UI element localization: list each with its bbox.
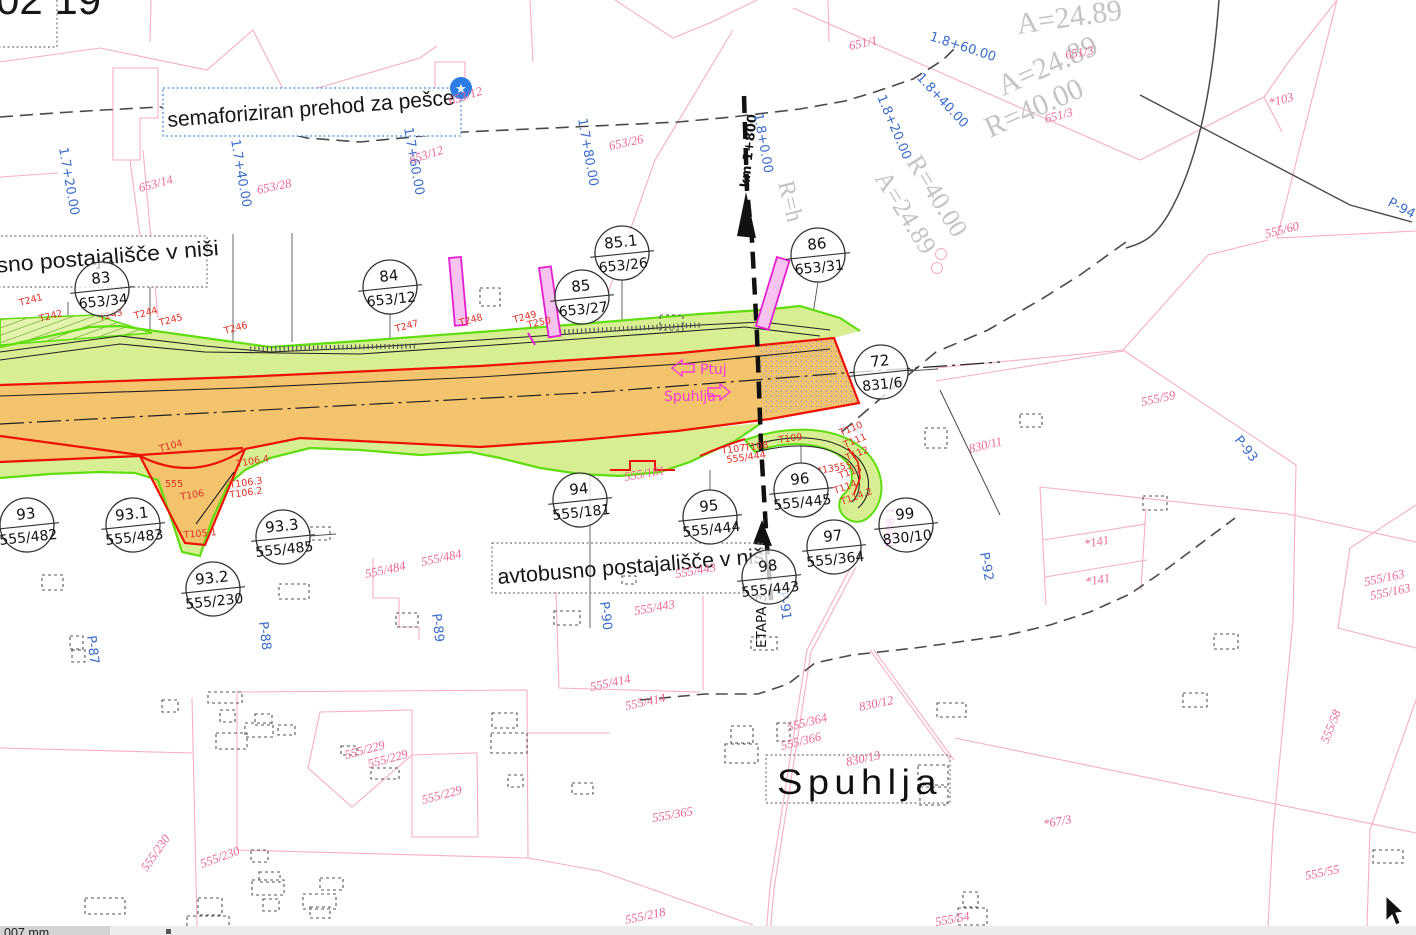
parcel-circle-number: 99 xyxy=(894,504,915,524)
gravel-section xyxy=(757,338,859,413)
parcel-label: 555/484 xyxy=(420,547,463,569)
parcel-label: *67/3 xyxy=(1042,812,1072,831)
building-footprint xyxy=(480,288,500,306)
status-tick xyxy=(166,929,171,934)
building-footprint xyxy=(925,428,947,448)
parcel-circle-number: 72 xyxy=(869,351,890,371)
parcel-circle-number: 98 xyxy=(757,556,778,576)
geometry-label: A=24.89 xyxy=(1014,0,1124,41)
survey-point-label: T105.1 xyxy=(182,527,217,541)
station-label: 1.7+20.00 xyxy=(55,146,82,216)
building-footprint xyxy=(491,733,527,753)
building-footprint xyxy=(508,775,523,787)
profile-label: P-88 xyxy=(255,621,273,651)
building-footprint xyxy=(303,894,336,909)
parcel-label: 555/414 xyxy=(589,672,632,694)
corner-fragment-text[interactable]: 02 19 xyxy=(0,0,101,23)
parcel-label: *141 xyxy=(1084,571,1111,589)
building-footprint xyxy=(216,733,247,749)
profile-label: P-89 xyxy=(428,613,446,643)
parcel-label: *103 xyxy=(1267,90,1295,110)
building-footprint xyxy=(320,878,343,890)
building-footprint xyxy=(72,650,85,662)
parcel-circle: 93.3555/485 xyxy=(248,507,317,567)
parcel-circle-number: 93.2 xyxy=(194,567,229,588)
parcel-circle: 93555/482 xyxy=(0,495,62,555)
parcel-circle: 95555/444 xyxy=(675,487,744,547)
parcel-circle-number: 97 xyxy=(822,526,843,546)
profile-label: P-90 xyxy=(596,601,614,631)
scrollbar-track[interactable] xyxy=(0,926,1416,935)
direction-left-label: Ptuj xyxy=(700,362,727,378)
parcel-label: 830/11 xyxy=(967,434,1003,456)
parcel-label: 555/229 xyxy=(420,783,464,807)
parcel-circle-number: 84 xyxy=(378,266,399,286)
parcel-label: 555/484 xyxy=(364,559,407,581)
parcel-label: 555/58 xyxy=(1318,707,1344,745)
parcel-label: 830/12 xyxy=(858,693,895,714)
parcel-circle: 93.2555/230 xyxy=(178,559,247,619)
profile-label: P-87 xyxy=(83,635,101,665)
status-text: 007 mm xyxy=(4,926,49,935)
section-arrow-bottom xyxy=(753,520,772,546)
parcel-circle: 97555/364 xyxy=(799,517,868,577)
corner-fragment-box[interactable]: 02 19 xyxy=(0,0,101,47)
parcel-label: 653/26 xyxy=(608,132,646,153)
parcel-circle-number: 93.1 xyxy=(114,503,149,524)
building-footprint xyxy=(554,611,580,625)
parcel-label: 653/28 xyxy=(256,176,294,197)
station-label: 1.7+80.00 xyxy=(574,117,601,187)
parcel-label: 555/54 xyxy=(934,909,971,929)
building-footprint xyxy=(263,899,279,911)
building-footprint xyxy=(310,527,330,540)
tree-symbol xyxy=(936,249,947,260)
drawing-canvas[interactable]: km 1+800 ETAPA 3 Ptuj Spuhlja 02 19 sema… xyxy=(0,0,1416,935)
parcel-label: 555/366 xyxy=(779,729,823,753)
parcel-label: 555/55 xyxy=(1304,862,1341,883)
parcel-label: 653/14 xyxy=(137,172,174,195)
building-footprint xyxy=(198,898,222,915)
mouse-cursor-icon xyxy=(1386,896,1403,925)
parcel-circle-number: 93 xyxy=(15,504,36,524)
survey-point-label: 555 xyxy=(165,479,183,490)
building-footprint xyxy=(162,700,178,712)
building-footprint xyxy=(572,783,593,794)
tree-symbol xyxy=(932,263,943,274)
bus-shelter xyxy=(449,257,467,326)
building-footprint xyxy=(725,744,758,763)
crossing-note-box[interactable]: semaforiziran prehod za pešce ★ xyxy=(163,77,472,136)
parcel-circle-number: 86 xyxy=(806,234,827,254)
building-footprint xyxy=(279,584,309,599)
parcel-circle-number: 95 xyxy=(698,496,719,516)
building-footprint xyxy=(1020,414,1042,427)
parcel-circle-number: 83 xyxy=(90,268,111,288)
station-label: 1.7+40.00 xyxy=(227,138,254,208)
station-label: 1.8+20.00 xyxy=(873,93,914,162)
building-footprint xyxy=(220,710,235,722)
parcel-label: 555/443 xyxy=(633,597,676,618)
parcel-circle-number: 85 xyxy=(570,276,591,296)
parcel-circle: 94555/181 xyxy=(545,470,614,530)
bus-stop-note-bottom-box[interactable]: avtobusno postajališče v niši xyxy=(492,543,770,593)
building-footprint xyxy=(42,575,63,590)
building-footprint xyxy=(731,726,753,743)
survey-point-label: T245 xyxy=(157,312,184,329)
building-footprint xyxy=(1373,850,1403,863)
geometry-label: R=h xyxy=(772,178,807,225)
survey-point-label: T246 xyxy=(222,320,249,337)
parcel-label: 555/218 xyxy=(624,905,668,927)
station-label: 1.8+60.00 xyxy=(928,30,998,66)
building-footprint xyxy=(251,850,268,862)
parcel-circle-number: 96 xyxy=(789,469,810,489)
station-label: 1.8+40.00 xyxy=(913,70,971,131)
parcel-label: *141 xyxy=(1083,533,1110,551)
building-footprint xyxy=(70,636,83,649)
parcel-circle: 93.1555/483 xyxy=(98,495,167,555)
profile-label: P-94 xyxy=(1385,195,1416,222)
profile-label: P-92 xyxy=(976,551,996,582)
building-footprint xyxy=(937,703,966,717)
survey-point-label: T247 xyxy=(393,318,420,335)
parcel-label: 555/414 xyxy=(624,691,667,713)
parcel-label: 555/230 xyxy=(198,843,242,870)
parcel-circle: 99830/10 xyxy=(871,495,940,555)
parcel-label: 555/365 xyxy=(651,804,694,825)
bus-stop-note-bottom-text[interactable]: avtobusno postajališče v niši xyxy=(497,544,770,589)
parcel-circle-number: 94 xyxy=(568,479,589,499)
building-footprint xyxy=(278,725,295,735)
section-arrow-top xyxy=(737,192,756,238)
building-footprint xyxy=(85,898,125,914)
parcel-circle: 85.1653/26 xyxy=(587,223,656,283)
parcel-label: 555/364 xyxy=(785,710,828,733)
building-footprint xyxy=(1183,693,1207,707)
parcel-label: 555/59 xyxy=(1140,388,1178,409)
survey-point-label: T241 xyxy=(17,292,44,309)
status-bar: 007 mm xyxy=(0,926,1416,935)
parcel-circle: 86653/31 xyxy=(783,225,852,285)
cad-viewport: km 1+800 ETAPA 3 Ptuj Spuhlja 02 19 sema… xyxy=(0,0,1416,935)
parcel-label: 555/230 xyxy=(138,832,173,874)
building-footprint xyxy=(963,892,978,907)
parcel-circle: 72831/6 xyxy=(846,342,915,402)
place-name-text[interactable]: Spuhlja xyxy=(777,763,942,802)
parcel-circle-number: 85.1 xyxy=(603,231,638,252)
parcel-circle-number: 93.3 xyxy=(264,515,299,536)
building-footprint xyxy=(1214,634,1238,649)
parcel-circle: 84653/12 xyxy=(355,257,424,317)
parcel-label: 651/1 xyxy=(848,33,879,53)
building-footprint xyxy=(492,713,517,728)
survey-point-label: T244 xyxy=(132,305,159,322)
